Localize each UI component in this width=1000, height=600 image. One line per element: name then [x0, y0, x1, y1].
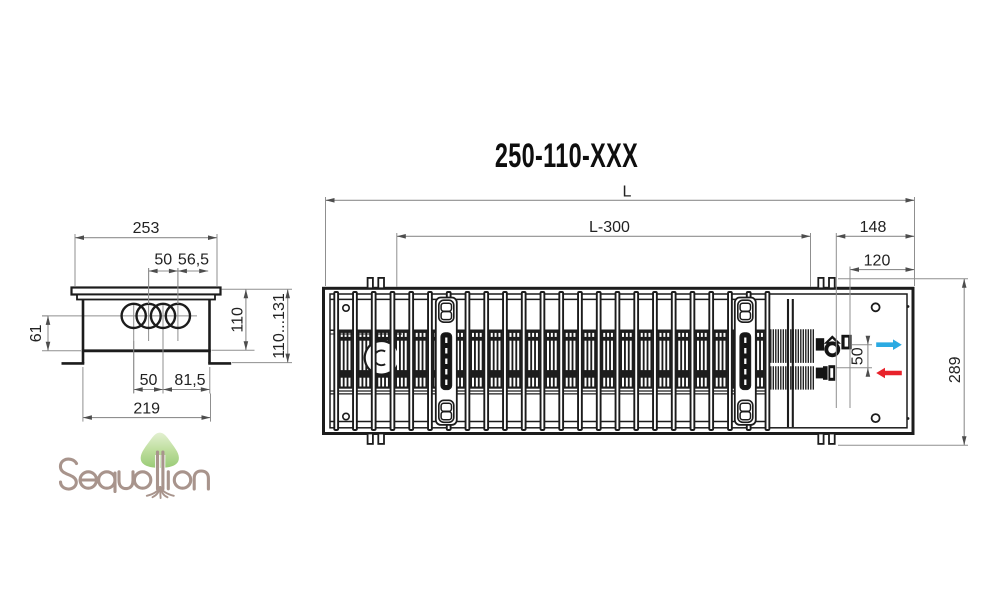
- svg-text:289: 289: [947, 356, 964, 383]
- svg-text:219: 219: [133, 401, 160, 418]
- svg-text:61: 61: [28, 324, 45, 342]
- svg-text:50: 50: [850, 347, 867, 365]
- svg-text:148: 148: [860, 219, 887, 236]
- svg-text:250-110-XXX: 250-110-XXX: [495, 137, 638, 176]
- svg-text:L-300: L-300: [589, 219, 630, 236]
- svg-text:50: 50: [154, 252, 172, 269]
- svg-text:120: 120: [864, 253, 891, 270]
- svg-text:56,5: 56,5: [178, 252, 209, 269]
- svg-text:110...131: 110...131: [271, 293, 288, 359]
- svg-text:50: 50: [140, 372, 158, 389]
- svg-text:81,5: 81,5: [174, 372, 205, 389]
- svg-text:L: L: [623, 184, 632, 201]
- svg-text:253: 253: [133, 220, 160, 237]
- svg-text:110: 110: [230, 307, 247, 333]
